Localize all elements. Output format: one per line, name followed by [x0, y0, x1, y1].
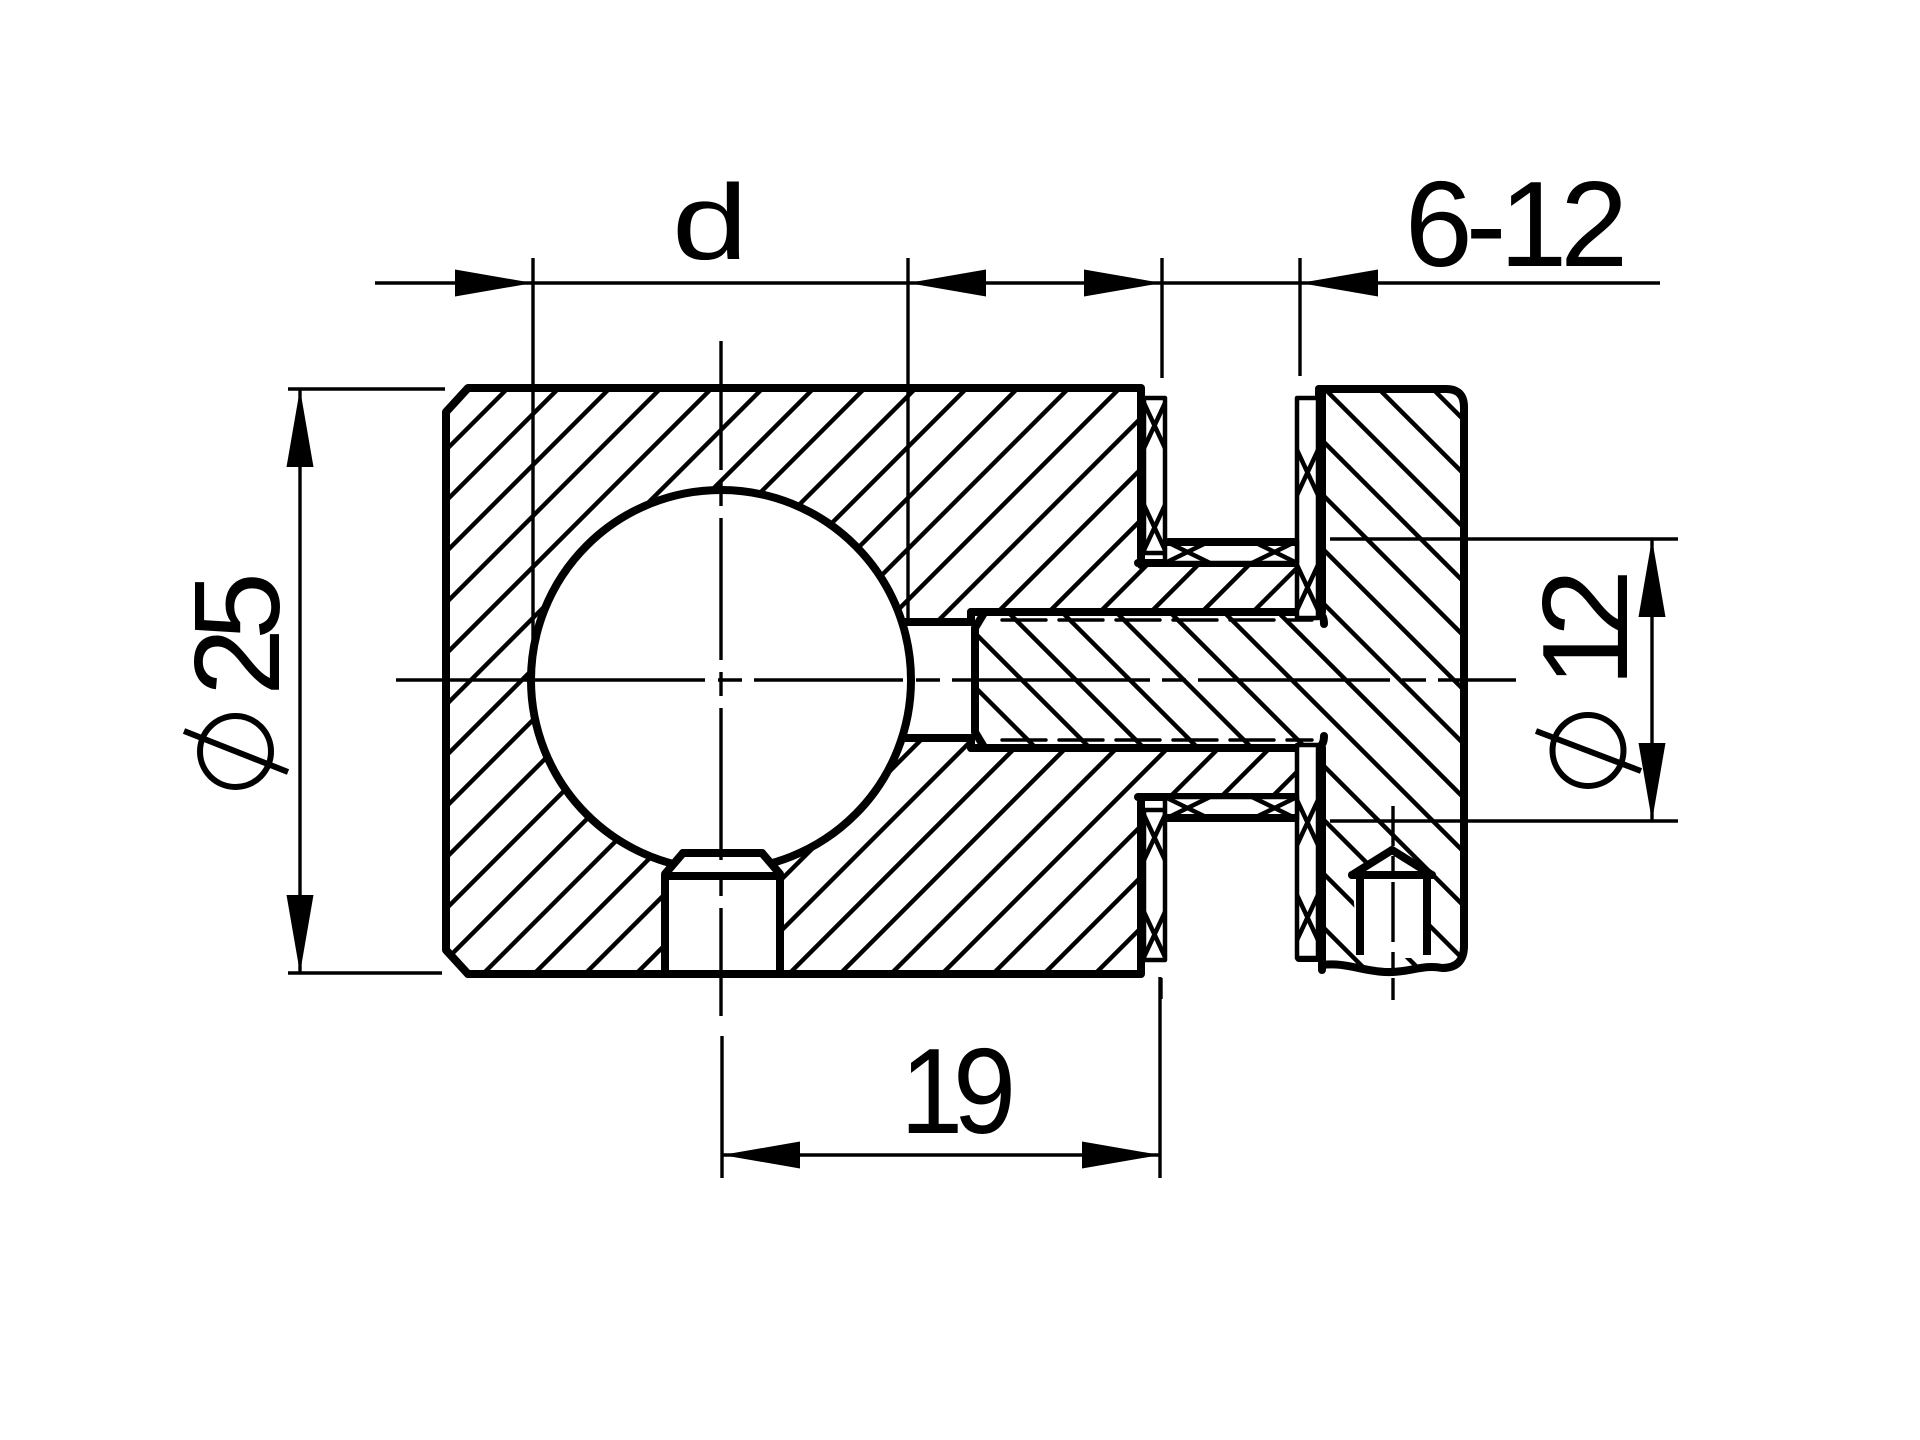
svg-text:25: 25 [169, 577, 305, 696]
svg-text:d: d [672, 163, 748, 282]
svg-text:19: 19 [900, 1022, 1011, 1159]
svg-text:6-12: 6-12 [1405, 156, 1622, 292]
svg-text:12: 12 [1517, 575, 1653, 687]
